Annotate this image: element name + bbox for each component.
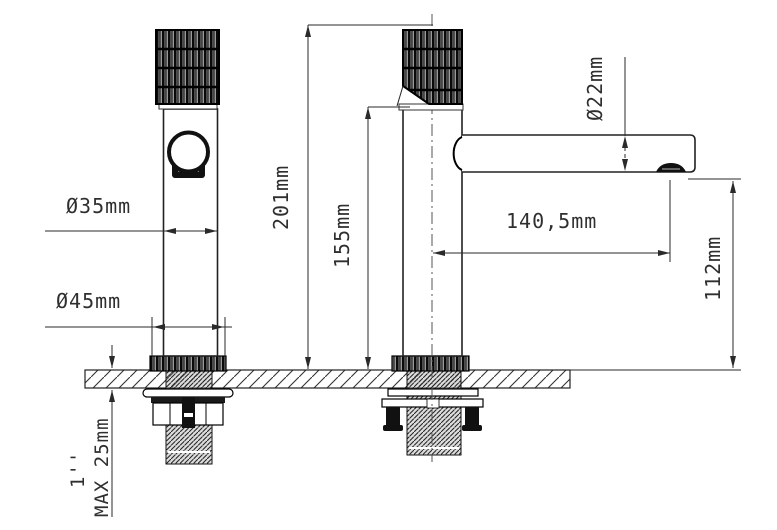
dim-body-height-label: 155mm <box>330 203 354 268</box>
dim-spout-height: 112mm <box>688 179 741 368</box>
front-knob <box>156 30 219 104</box>
technical-drawing-canvas: Ø35mm Ø45mm 201mm 155mm <box>0 0 777 530</box>
faucet-dimension-drawing: Ø35mm Ø45mm 201mm 155mm <box>0 0 777 530</box>
dim-spout-diameter-label: Ø22mm <box>583 56 607 121</box>
front-base-ring <box>150 356 226 371</box>
front-logo-badge <box>169 133 208 179</box>
dim-base-diameter-label: Ø45mm <box>56 289 121 313</box>
dim-total-height-label: 201mm <box>269 165 293 230</box>
dim-spout-reach-label: 140,5mm <box>506 209 597 233</box>
side-base-ring <box>392 356 469 371</box>
dim-spout-reach: 140,5mm <box>433 180 670 262</box>
dimension-annotations: Ø35mm Ø45mm 201mm 155mm <box>45 25 741 517</box>
dim-spout-height-label: 112mm <box>701 236 725 301</box>
dim-counter-thickness-label: MAX 25mm <box>91 417 113 517</box>
dim-body-diameter-label: Ø35mm <box>66 194 131 218</box>
front-mounting-nut <box>151 397 225 428</box>
side-spout <box>454 135 695 172</box>
dim-thread-size-label: 1'' <box>67 451 89 488</box>
front-mounting-washer <box>143 389 233 397</box>
side-knob <box>397 30 462 106</box>
faucet-side-view <box>382 14 695 462</box>
faucet-front-view <box>143 30 233 464</box>
dim-body-height: 155mm <box>330 107 410 369</box>
side-threaded-shank <box>407 370 461 455</box>
